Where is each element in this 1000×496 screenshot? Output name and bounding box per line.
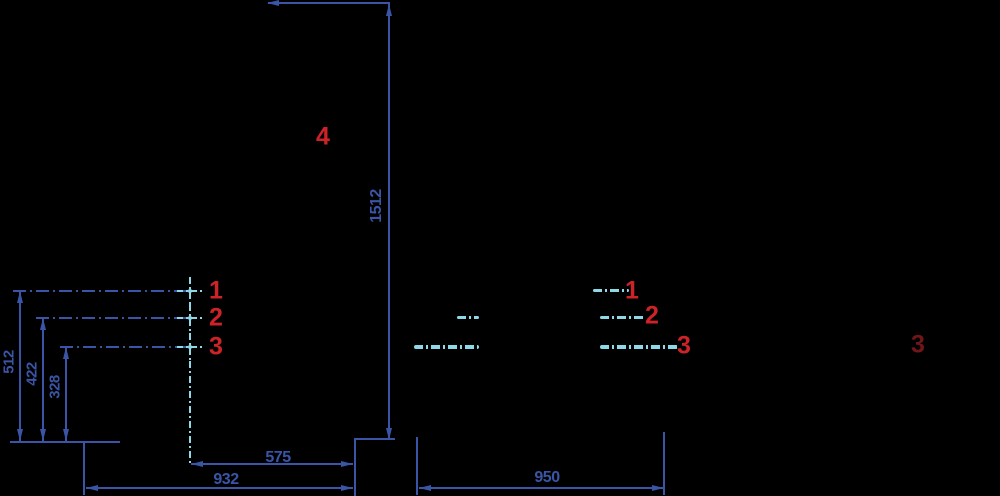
dim-1512-label: 1512 xyxy=(368,189,386,223)
point3-extension-line xyxy=(60,346,190,348)
point3-centerline-right xyxy=(600,345,678,349)
dim-512-line xyxy=(19,290,21,442)
point2-centerline-mid xyxy=(457,316,479,319)
arrow-up-icon xyxy=(386,4,392,16)
dim-422-label: 422 xyxy=(24,362,41,386)
dim-932-label: 932 xyxy=(213,471,238,489)
point2-center-dot xyxy=(188,316,192,320)
arrow-up-icon xyxy=(17,291,23,303)
arrow-down-icon xyxy=(17,429,23,441)
arrow-right-icon xyxy=(341,461,353,467)
point2-centerline-right xyxy=(600,316,646,319)
arrow-right-icon xyxy=(341,485,353,491)
dim-1512-line xyxy=(388,2,390,440)
base-top-edge-line xyxy=(354,438,395,440)
dim-950-label: 950 xyxy=(534,469,559,487)
dim-328-label: 328 xyxy=(47,375,64,399)
callout-right-3: 3 xyxy=(677,332,691,361)
arrow-left-icon xyxy=(267,0,279,6)
callout-far-right-3: 3 xyxy=(911,331,925,360)
dim-950-left-extension-line xyxy=(416,437,418,495)
arrow-up-icon xyxy=(40,318,46,330)
arrow-left-icon xyxy=(86,485,98,491)
point1-centerline-right xyxy=(593,289,629,292)
point2-extension-line xyxy=(36,317,190,319)
arrow-down-icon xyxy=(63,429,69,441)
point1-extension-line xyxy=(13,290,190,292)
callout-right-2: 2 xyxy=(645,302,659,331)
technical-drawing-canvas: 1512 512 422 328 1 2 3 4 1 2 3 3 xyxy=(0,0,1000,496)
point3-centerline-drop xyxy=(189,361,191,464)
dim-950-line xyxy=(419,487,664,489)
arrow-up-icon xyxy=(63,347,69,359)
dim-328-line xyxy=(65,346,67,442)
callout-upper-4: 4 xyxy=(316,123,330,152)
point3-center-dot xyxy=(188,345,192,349)
dim-575-label: 575 xyxy=(265,449,290,467)
dim-422-line xyxy=(42,317,44,442)
dim-512-label: 512 xyxy=(1,350,18,374)
callout-right-1: 1 xyxy=(625,277,639,306)
dim-932-left-extension-line xyxy=(83,442,85,495)
point1-center-dot xyxy=(188,289,192,293)
top-extension-line xyxy=(268,2,390,4)
base-left-edge-line xyxy=(354,438,356,496)
point3-centerline-mid xyxy=(414,345,479,349)
arrow-down-icon xyxy=(40,429,46,441)
ground-reference-line xyxy=(10,441,120,443)
arrow-right-icon xyxy=(652,485,664,491)
arrow-left-icon xyxy=(419,485,431,491)
callout-left-3: 3 xyxy=(209,333,223,362)
callout-left-1: 1 xyxy=(209,277,223,306)
arrow-left-icon xyxy=(191,461,203,467)
callout-left-2: 2 xyxy=(209,304,223,333)
